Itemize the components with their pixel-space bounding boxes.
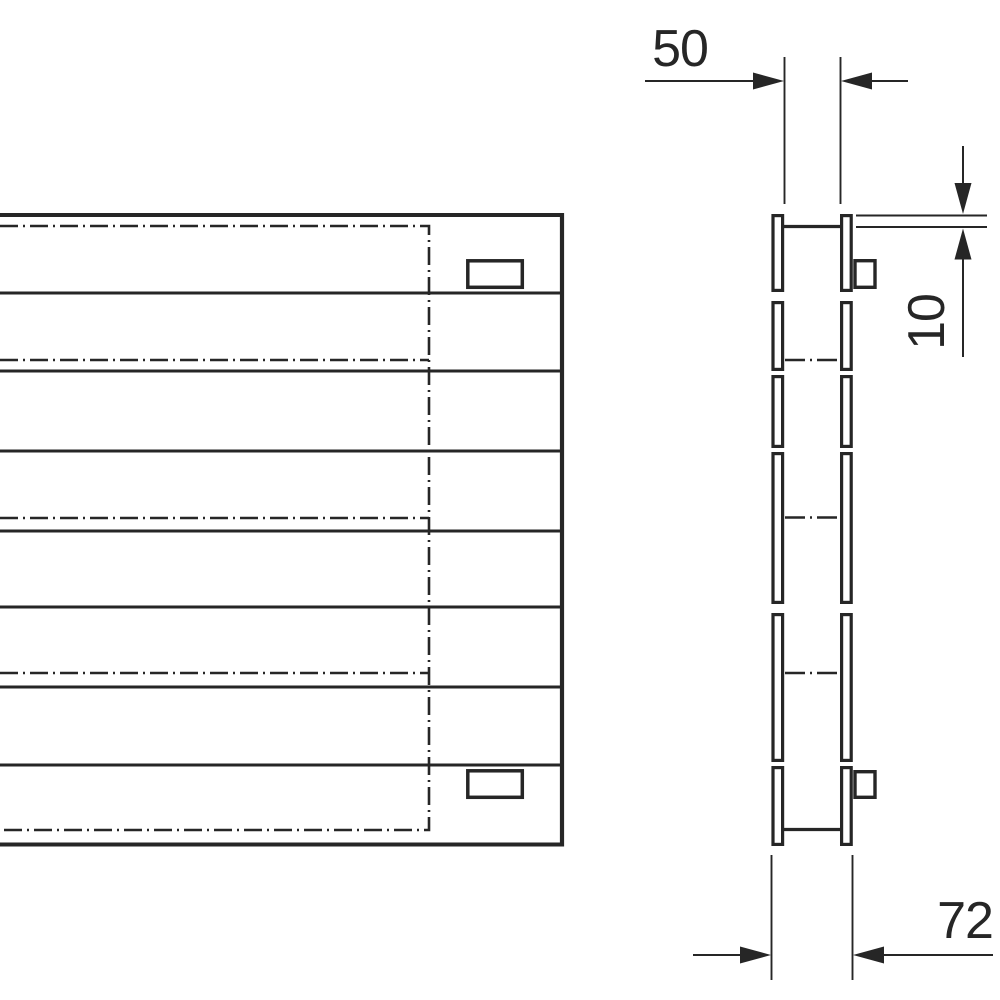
- front-centerlines: [0, 360, 429, 673]
- arrowhead-up-icon: [955, 229, 972, 260]
- strip-segment: [773, 454, 783, 603]
- dimension-10: 10: [856, 146, 987, 357]
- side-bracket-tab-top: [855, 261, 875, 288]
- arrowhead-left-icon: [853, 947, 884, 964]
- arrowhead-right-icon: [740, 947, 771, 964]
- strip-segment: [842, 768, 852, 845]
- strip-segment: [773, 615, 783, 761]
- technical-drawing: 50 10 72: [0, 0, 1000, 1000]
- arrowhead-down-icon: [955, 183, 972, 214]
- strip-segment: [842, 615, 852, 761]
- front-slat-lines: [0, 293, 562, 765]
- dimension-72: 72: [693, 855, 993, 980]
- strip-segment: [773, 377, 783, 447]
- strip-segment: [842, 377, 852, 447]
- front-view: [0, 213, 564, 847]
- dimension-label-72: 72: [937, 892, 993, 950]
- centerline-frame: [0, 226, 429, 830]
- side-view: [773, 216, 875, 845]
- strip-segment: [773, 216, 783, 291]
- arrowhead-left-icon: [841, 73, 872, 90]
- dimension-label-10: 10: [898, 294, 956, 350]
- dimension-50: 50: [645, 20, 908, 204]
- drawing-canvas: 50 10 72: [0, 0, 1000, 1000]
- strip-segment: [773, 768, 783, 845]
- side-rear-strip: [842, 216, 852, 845]
- strip-segment: [842, 216, 852, 291]
- arrowhead-right-icon: [753, 73, 784, 90]
- side-front-strip: [773, 216, 783, 845]
- bracket-top: [468, 261, 523, 288]
- strip-segment: [842, 454, 852, 603]
- side-centerlines: [785, 360, 840, 673]
- side-bracket-tab-bottom: [855, 772, 875, 798]
- bracket-bottom: [468, 771, 523, 798]
- strip-segment: [842, 303, 852, 370]
- dimension-label-50: 50: [652, 20, 708, 78]
- strip-segment: [773, 303, 783, 370]
